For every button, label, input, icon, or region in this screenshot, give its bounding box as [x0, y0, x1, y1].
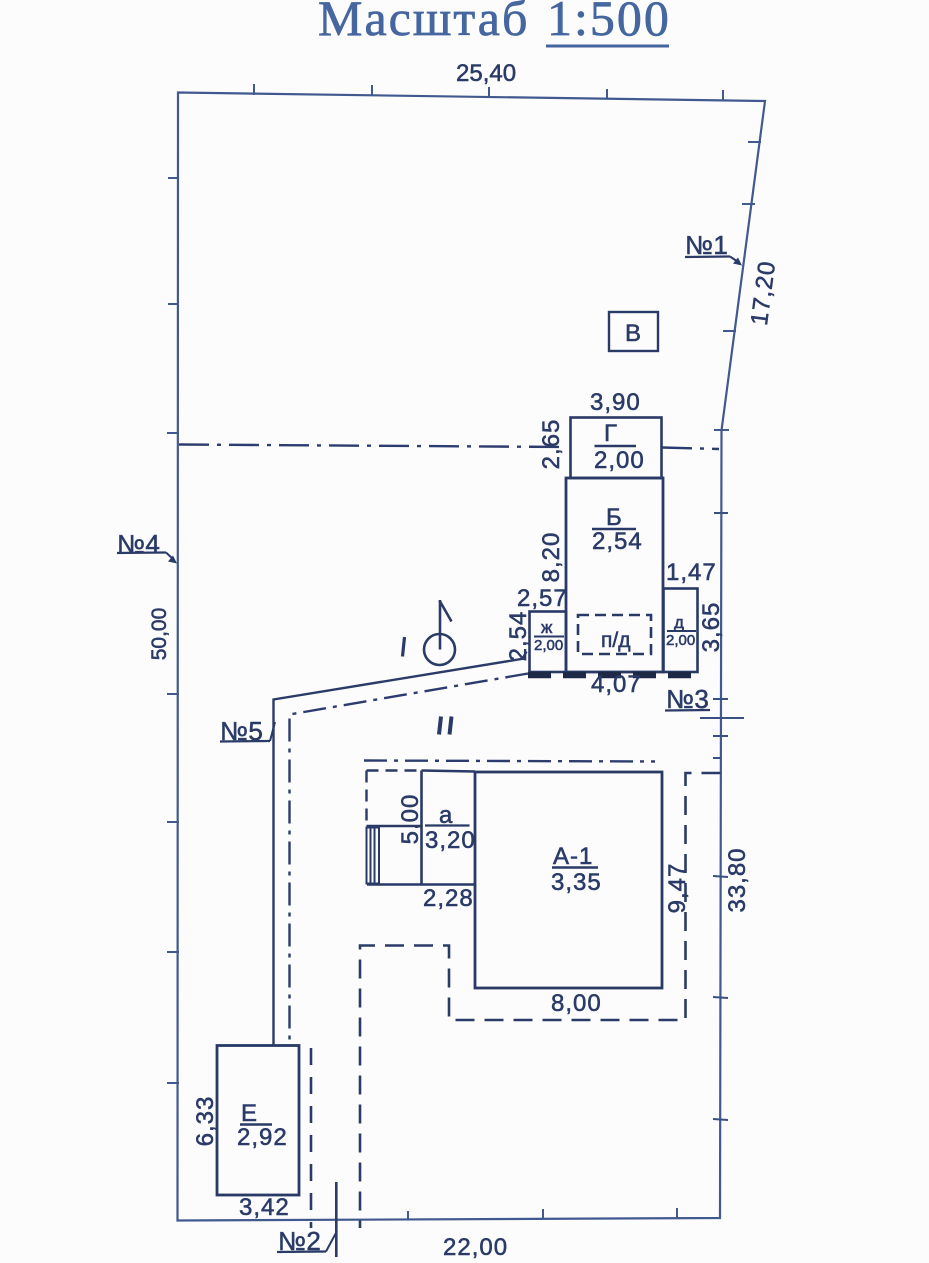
svg-text:3,35: 3,35	[551, 869, 602, 896]
svg-text:1:500: 1:500	[547, 0, 671, 46]
svg-text:1,47: 1,47	[666, 559, 717, 586]
svg-text:2,00: 2,00	[666, 632, 695, 649]
svg-text:№4: №4	[117, 529, 160, 559]
svg-text:Е: Е	[241, 1100, 258, 1127]
svg-text:д: д	[674, 613, 684, 632]
svg-text:50,00: 50,00	[148, 608, 171, 661]
svg-text:33,80: 33,80	[724, 847, 751, 912]
svg-text:А-1: А-1	[553, 843, 593, 870]
svg-text:В: В	[625, 320, 642, 347]
svg-text:3,90: 3,90	[590, 389, 641, 416]
svg-text:2,92: 2,92	[237, 1124, 288, 1151]
svg-text:2,28: 2,28	[423, 885, 474, 912]
svg-text:2,54: 2,54	[592, 528, 643, 555]
svg-text:Б: Б	[606, 504, 623, 531]
svg-text:8,00: 8,00	[551, 990, 602, 1017]
svg-text:4,07: 4,07	[591, 671, 642, 698]
svg-text:2,00: 2,00	[534, 637, 563, 654]
svg-text:8,20: 8,20	[538, 532, 565, 583]
svg-text:Г: Г	[604, 420, 618, 447]
svg-text:9,47: 9,47	[664, 863, 691, 914]
svg-text:3,42: 3,42	[239, 1194, 290, 1221]
svg-text:Масштаб: Масштаб	[318, 0, 529, 46]
svg-text:5,00: 5,00	[397, 794, 424, 845]
svg-text:25,40: 25,40	[456, 60, 516, 87]
svg-text:2,00: 2,00	[594, 447, 645, 474]
svg-text:6,33: 6,33	[192, 1096, 219, 1147]
svg-text:22,00: 22,00	[443, 1234, 508, 1261]
svg-text:ж: ж	[541, 618, 553, 637]
svg-text:3,65: 3,65	[698, 602, 725, 653]
svg-text:2,57: 2,57	[517, 585, 568, 612]
svg-text:п/д: п/д	[601, 629, 630, 652]
svg-text:2,65: 2,65	[538, 419, 565, 470]
svg-text:3,20: 3,20	[425, 827, 476, 854]
svg-text:2,54: 2,54	[505, 611, 532, 662]
